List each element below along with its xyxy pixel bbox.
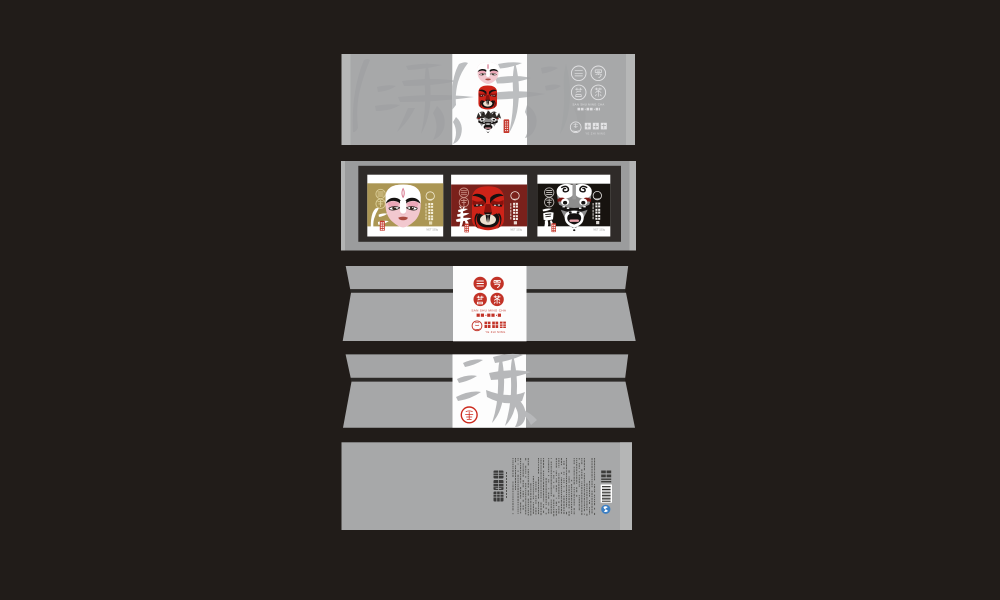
svg-text:NET 150g: NET 150g: [510, 228, 522, 232]
svg-text:YE ZHI MING: YE ZHI MING: [485, 330, 505, 334]
svg-text:NET 150g: NET 150g: [593, 227, 605, 231]
svg-text:SAN SHU MING CHA: SAN SHU MING CHA: [471, 308, 507, 312]
svg-text:SAN SHU MING CHA: SAN SHU MING CHA: [573, 102, 605, 106]
svg-text:NET 150g: NET 150g: [426, 228, 438, 232]
svg-text:YE ZHI MING: YE ZHI MING: [585, 132, 605, 136]
